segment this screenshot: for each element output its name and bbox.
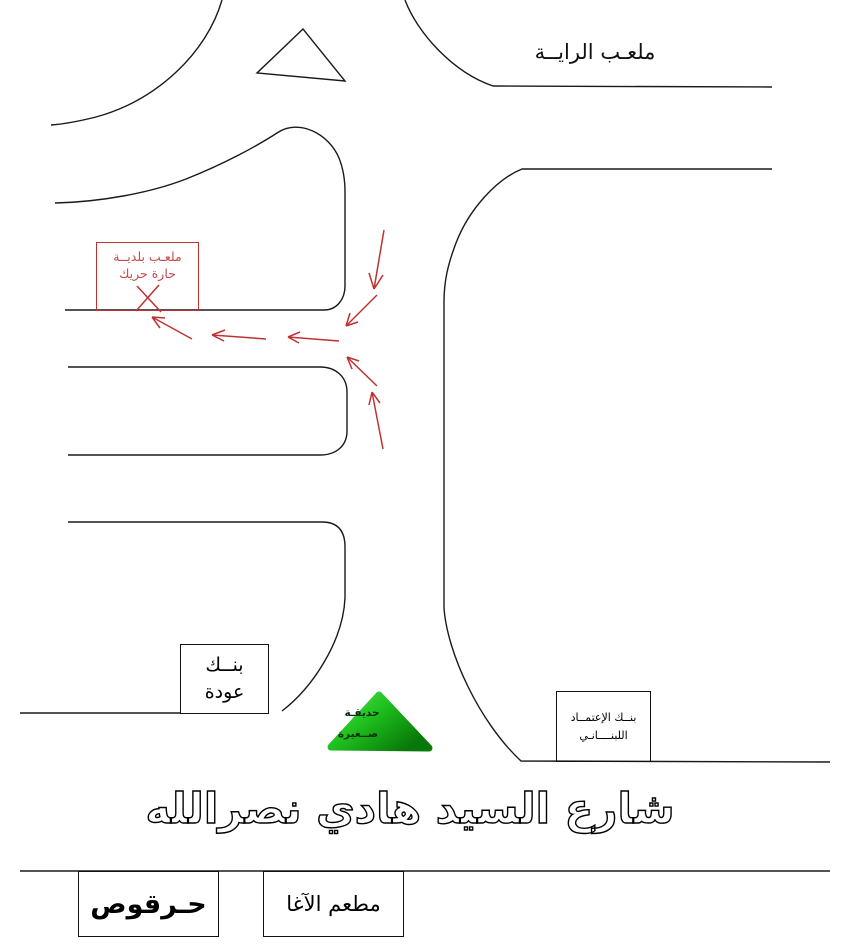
- credit-bank-box: بنــك الإعتمــاد اللبنــــانـي: [556, 691, 651, 762]
- harkous-label: حـرقوص: [90, 889, 206, 920]
- hand-drawn-map: ملعـب الرايــة ملعـب بلديــة حارة حريك ب…: [0, 0, 849, 945]
- garden-label-line1: حديقـة: [330, 707, 394, 719]
- route-arrow-down-icon: [369, 230, 384, 289]
- route-arrow-up-left-icon: [347, 357, 377, 386]
- municipal-stadium-box: ملعـب بلديــة حارة حريك: [96, 242, 199, 311]
- municipal-stadium-label-line1: ملعـب بلديــة: [113, 248, 181, 265]
- direction-triangle-icon: [257, 29, 345, 81]
- bank-audi-label-line2: عودة: [205, 679, 245, 706]
- street-name-label: شارع السيد هادي نصرالله: [140, 784, 680, 833]
- route-arrow-left-2-icon: [212, 330, 266, 341]
- raya-stadium-label: ملعـب الرايــة: [505, 40, 685, 64]
- municipal-stadium-label-line2: حارة حريك: [119, 265, 176, 282]
- route-arrow-down-left-icon: [346, 295, 377, 326]
- route-arrow-left-1-icon: [288, 332, 339, 343]
- garden-triangle-icon: [331, 695, 429, 748]
- route-arrow-up-icon: [369, 392, 383, 449]
- road-edge-top-left: [51, 0, 222, 125]
- harkous-box: حـرقوص: [78, 871, 219, 937]
- agha-restaurant-box: مطعم الآغا: [263, 871, 404, 937]
- bank-audi-label-line1: بنــك: [205, 652, 243, 679]
- credit-bank-label-line2: اللبنــــانـي: [579, 727, 627, 745]
- route-arrow-to-destination-icon: [152, 317, 192, 339]
- garden-label-line2: صــغيرة: [322, 728, 394, 740]
- credit-bank-label-line1: بنــك الإعتمــاد: [571, 709, 637, 727]
- agha-restaurant-label: مطعم الآغا: [286, 892, 380, 916]
- bank-audi-box: بنــك عودة: [180, 644, 269, 714]
- road-edge-right-avenue: [444, 169, 830, 762]
- road-edge-middle-block: [68, 367, 347, 455]
